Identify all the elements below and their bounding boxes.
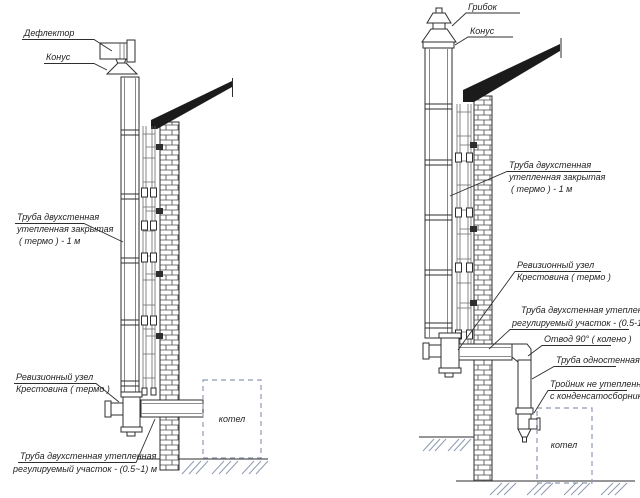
- left-boiler-box: котел: [203, 380, 261, 458]
- right-crosspiece-revision: [423, 333, 461, 377]
- right-diagram: котел Грибок Конус Труба двухстенная уте…: [419, 2, 640, 495]
- right-tee-label-1: Тройник не утепленный: [550, 379, 640, 389]
- left-adjustable-label-1: Труба двухстенная утепленная: [20, 451, 157, 461]
- right-brick-wall: [474, 96, 492, 481]
- left-pipe-closed-label-2: утепленная закрытая: [16, 224, 114, 234]
- left-horizontal-pipe: [141, 400, 203, 417]
- right-boiler-label: котел: [551, 440, 578, 450]
- right-pipe-closed-label-2: утепленная закрытая: [508, 172, 606, 182]
- right-pipe-closed-label-1: Труба двухстенная: [509, 160, 591, 170]
- left-deflector: [100, 40, 135, 64]
- left-deflector-label: Дефлектор: [23, 28, 74, 38]
- left-adjustable-label-2: регулируемый участок - (0.5~1) м: [12, 464, 157, 474]
- left-brick-wall: [160, 122, 179, 470]
- left-revision-label-1: Ревизионный узел: [16, 372, 93, 382]
- left-roof: [151, 78, 233, 129]
- right-adjustable-label-2: регулируемый участок - (0.5-1) м: [511, 318, 640, 328]
- chimney-installation-diagram: котел Дефлектор Конус Труба двухстенная …: [0, 0, 640, 498]
- right-boiler-box: котел: [537, 408, 592, 483]
- right-single-wall-label: Труба одностенная: [556, 355, 640, 365]
- left-chimney-pipe: [121, 77, 139, 393]
- left-ground: [138, 459, 268, 474]
- right-ground-upper: [419, 437, 474, 451]
- right-elbow-90: [512, 344, 531, 362]
- right-tee-condensate: [518, 414, 540, 442]
- right-horizontal-pipe: [459, 344, 512, 360]
- right-roof: [463, 38, 561, 102]
- right-elbow-label: Отвод 90° ( колено ): [544, 334, 632, 344]
- right-cap-label: Грибок: [468, 2, 498, 12]
- left-revision-label-2: Крестовина ( термо ): [16, 384, 110, 394]
- left-cone-label: Конус: [46, 52, 71, 62]
- left-pipe-closed-label-3: ( термо ) - 1 м: [19, 236, 80, 246]
- right-revision-label-1: Ревизионный узел: [517, 260, 594, 270]
- right-tee-label-2: с конденсатосборником: [550, 391, 640, 401]
- right-single-wall-pipe: [516, 360, 533, 414]
- right-revision-label-2: Крестовина ( термо ): [517, 272, 611, 282]
- right-adjustable-label-1: Труба двухстенная утепленная: [521, 305, 640, 315]
- right-cone-label: Конус: [470, 26, 495, 36]
- right-cone: [422, 29, 456, 48]
- left-boiler-label: котел: [219, 414, 246, 424]
- left-cone: [107, 63, 139, 77]
- right-chimney-pipe: [425, 48, 452, 338]
- left-crosspiece-revision: [105, 392, 142, 436]
- left-pipe-closed-label-1: Труба двухстенная: [17, 212, 99, 222]
- right-ground-lower: [456, 481, 635, 495]
- right-mushroom-cap: [427, 8, 451, 29]
- diagram-canvas: котел Дефлектор Конус Труба двухстенная …: [0, 0, 640, 498]
- right-pipe-closed-label-3: ( термо ) - 1 м: [511, 184, 572, 194]
- left-diagram: котел Дефлектор Конус Труба двухстенная …: [12, 28, 268, 474]
